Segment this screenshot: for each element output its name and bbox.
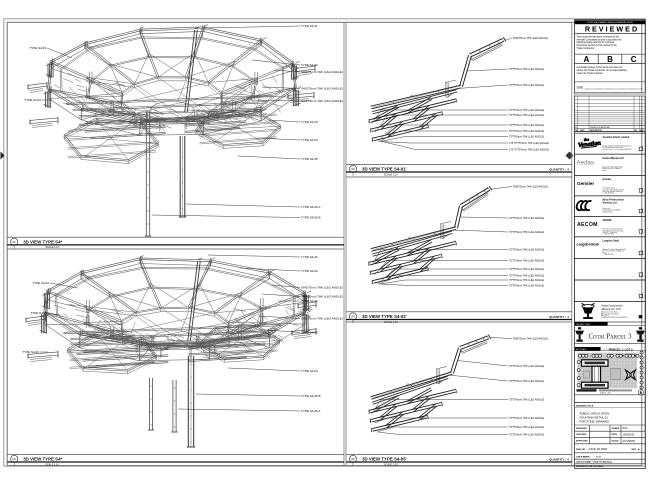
svg-text:75*75*6mm THK (L&G ANGLE): 75*75*6mm THK (L&G ANGLE) <box>509 380 544 383</box>
svg-text:05: 05 <box>351 457 355 461</box>
svg-text:NO.: NO. <box>575 130 579 132</box>
svg-text:DRAWING TITLE: DRAWING TITLE <box>576 404 594 407</box>
svg-text:8/F, Tower 2, Grand Central Pl: 8/F, Tower 2, Grand Central Plaza, <box>603 228 624 231</box>
svg-text:03: 03 <box>351 167 355 171</box>
svg-text:SCALE 1:10: SCALE 1:10 <box>384 173 398 176</box>
svg-text:-: - <box>597 440 598 443</box>
svg-text:Gensler: Gensler <box>577 181 594 186</box>
svg-text:JOB NUMBER :: JOB NUMBER : <box>576 456 591 458</box>
svg-text:13/05/2015: 13/05/2015 <box>623 434 635 436</box>
svg-text:C: C <box>631 55 637 64</box>
svg-text:AS SHOWN: AS SHOWN <box>623 440 636 443</box>
svg-text:75*75*6mm THK (L&G ANGLE): 75*75*6mm THK (L&G ANGLE) <box>509 417 544 420</box>
svg-text:75*75*6mm THK (L&G ANGLE): 75*75*6mm THK (L&G ANGLE) <box>509 260 544 263</box>
svg-text:L75 75*75*6mm THK (L&G ANGLE): L75 75*75*6mm THK (L&G ANGLE) <box>509 149 549 152</box>
svg-text:LangdonSeah: LangdonSeah <box>577 243 599 247</box>
svg-text:TYPE S4-03: TYPE S4-03 <box>301 331 318 335</box>
svg-text:-: - <box>597 433 598 436</box>
svg-text:B: B <box>607 55 613 64</box>
svg-text:SHS/75mm THK (L&G ANGLE): SHS/75mm THK (L&G ANGLE) <box>301 70 343 74</box>
svg-text:DRAWN: DRAWN <box>612 427 620 430</box>
svg-text:TYPE S4-05 A: TYPE S4-05 A <box>301 205 320 209</box>
svg-text:T + 852.2317.7000: T + 852.2317.7000 <box>603 234 615 236</box>
svg-text:SCALE 1 : 2500: SCALE 1 : 2500 <box>600 392 611 395</box>
svg-text:Macau: Macau <box>603 252 607 254</box>
svg-text:04: 04 <box>351 315 355 319</box>
svg-text:75*75*6mm THK (L&G ANGLE): 75*75*6mm THK (L&G ANGLE) <box>509 124 544 127</box>
svg-text:SCALE 1:10: SCALE 1:10 <box>45 463 59 466</box>
svg-text:Estrada da Baia de N. Senhora: Estrada da Baia de N. Senhora da Esperan… <box>603 144 633 147</box>
svg-text:Date :: Date : <box>577 85 586 89</box>
svg-text:ISSUED FOR APPROVAL: ISSUED FOR APPROVAL <box>590 126 610 129</box>
svg-text:TYPE S4-02: TYPE S4-02 <box>301 299 318 303</box>
svg-text:SCALE 1:10: SCALE 1:10 <box>45 246 59 249</box>
svg-text:SHS/75mm THK (L&G ANGLE): SHS/75mm THK (L&G ANGLE) <box>301 286 343 290</box>
svg-text:Procedure Section 5.4 for: Procedure Section 5.4 for action by the <box>577 44 618 47</box>
svg-text:Services Ltd.: Services Ltd. <box>603 207 611 210</box>
svg-text:QUANTITY : 4: QUANTITY : 4 <box>549 168 569 172</box>
svg-text:75*75*6mm THK (L&G ANGLE): 75*75*6mm THK (L&G ANGLE) <box>509 399 544 402</box>
svg-text:TYPE S4-04: TYPE S4-04 <box>301 369 318 373</box>
svg-text:TYPE S4-05 A: TYPE S4-05 A <box>301 409 320 413</box>
svg-text:Two Harbour Square: Two Harbour Square <box>603 187 616 190</box>
svg-text:Langdon Seah: Langdon Seah <box>603 239 620 242</box>
svg-text:LICENSED CONSTRUCTION No. 0828: LICENSED CONSTRUCTION No. 0828/2015 <box>601 317 627 319</box>
svg-text:75*75*6mm THK (L&G ANGLE): 75*75*6mm THK (L&G ANGLE) <box>509 84 544 87</box>
svg-text:R E V I E W E D: R E V I E W E D <box>585 25 637 34</box>
svg-text:Trade Contractor.: Trade Contractor. <box>577 47 595 50</box>
svg-text:SHS/75mm THK (L&G ANGLE): SHS/75mm THK (L&G ANGLE) <box>301 87 343 91</box>
svg-text:(Macau) CO. LTD.: (Macau) CO. LTD. <box>601 308 622 311</box>
svg-text:01: 01 <box>13 240 17 244</box>
svg-text:Consultant review of this: Consultant review of this document does … <box>577 66 623 69</box>
svg-text:CHECKED: CHECKED <box>576 434 587 436</box>
svg-text:Avenida da Praia Grande, No.66: Avenida da Praia Grande, No.665, <box>603 165 624 168</box>
svg-text:FOR STEEL DRAWING: FOR STEEL DRAWING <box>580 420 610 424</box>
svg-text:TYPE S4-03: TYPE S4-03 <box>301 120 318 124</box>
svg-text:SCALE: SCALE <box>612 440 620 443</box>
svg-text:L75 75*75*6mm THK (L&G ANGLE): L75 75*75*6mm THK (L&G ANGLE) <box>509 142 549 145</box>
svg-text:following status referred t: following status referred to in Project <box>577 41 615 44</box>
svg-text:QUANTITY : 4: QUANTITY : 4 <box>549 315 569 319</box>
svg-text:APPROVED: APPROVED <box>576 440 588 443</box>
svg-text:relevant Consultants(s) and: relevant Consultants(s) and is accorded … <box>577 38 623 41</box>
svg-text:75*75*6mm THK (L&G ANGLE): 75*75*6mm THK (L&G ANGLE) <box>509 285 544 288</box>
svg-text:Gensler: Gensler <box>603 178 612 181</box>
svg-text:TYPE S4-02: TYPE S4-02 <box>32 281 49 285</box>
svg-text:02: 02 <box>13 457 17 461</box>
svg-text:75*75*6mm THK (L&G ANGLE): 75*75*6mm THK (L&G ANGLE) <box>509 268 544 271</box>
svg-text:CAD FILE NAME : 3-SUB_FD_BS04.: CAD FILE NAME : 3-SUB_FD_BS04.dwg <box>576 460 613 463</box>
svg-text:relieve the Trade Contracto: relieve the Trade Contractor of its resp… <box>577 69 628 72</box>
svg-text:75*75*6mm THK (L&G ANGLE): 75*75*6mm THK (L&G ANGLE) <box>509 231 544 234</box>
svg-text:75*75*6mm THK (L&G ANGLE): 75*75*6mm THK (L&G ANGLE) <box>509 109 544 112</box>
svg-text:TYPE S4-03: TYPE S4-03 <box>29 46 46 50</box>
svg-text:This document has been rev: This document has been reviewed by the <box>577 36 620 39</box>
svg-text:SHS/75mm THK (L&G ANGLE): SHS/75mm THK (L&G ANGLE) <box>513 37 548 40</box>
svg-text:3-SUB_FD_BS04: 3-SUB_FD_BS04 <box>589 448 608 451</box>
svg-text:75*75*6mm THK (L&G ANGLE): 75*75*6mm THK (L&G ANGLE) <box>509 130 544 133</box>
svg-text:3D VIEW TYPE S4*: 3D VIEW TYPE S4* <box>23 457 62 462</box>
svg-text:SHS/75mm THK (L&G ANGLE): SHS/75mm THK (L&G ANGLE) <box>301 317 343 321</box>
svg-text:Macau: Macau <box>603 170 607 172</box>
svg-text:75*75*6mm THK (L&G ANGLE): 75*75*6mm THK (L&G ANGLE) <box>509 249 544 252</box>
svg-text:75*75*6mm THK (L&G ANGLE): 75*75*6mm THK (L&G ANGLE) <box>509 279 544 282</box>
svg-text:Avenida Comercial de Macau,: Avenida Comercial de Macau, <box>601 311 619 314</box>
svg-text:DESCRIPTION: DESCRIPTION <box>590 130 602 132</box>
svg-text:TYPE S4-03: TYPE S4-03 <box>30 311 47 315</box>
svg-text:3108: 3108 <box>596 456 602 458</box>
svg-text:DATE: DATE <box>612 433 618 436</box>
svg-text:3D VIEW TYPE S4-05': 3D VIEW TYPE S4-05' <box>362 457 407 462</box>
svg-text:75*75*6mm THK (L&G ANGLE): 75*75*6mm THK (L&G ANGLE) <box>509 275 544 278</box>
svg-text:SHS/75mm THK (L&G ANGLE): SHS/75mm THK (L&G ANGLE) <box>301 295 343 299</box>
svg-text:QUANTITY : 4: QUANTITY : 4 <box>549 458 569 462</box>
svg-text:SCALE 1:10: SCALE 1:10 <box>384 321 398 324</box>
svg-text:under the Trade Contract.: under the Trade Contract. <box>577 72 604 75</box>
svg-text:TYPE S4-02: TYPE S4-02 <box>22 350 39 354</box>
svg-text:Macau, P.R.C.: Macau, P.R.C. <box>601 315 610 317</box>
svg-text:REV : A: REV : A <box>632 448 640 451</box>
svg-text:REFERENCE CAD FILE NAME: REFERENCE CAD FILE NAME <box>576 465 604 468</box>
svg-text:SHS/75mm THK (L&G ANGLE): SHS/75mm THK (L&G ANGLE) <box>513 186 548 189</box>
svg-text:DWG NO :: DWG NO : <box>576 449 587 451</box>
svg-text:3D VIEW TYPE S4-02': 3D VIEW TYPE S4-02' <box>362 314 407 319</box>
svg-text:TYPE S4-05: TYPE S4-05 <box>301 157 318 161</box>
svg-text:TYPE S4-05 B: TYPE S4-05 B <box>301 394 321 398</box>
svg-text:Cotai Parcel 3: Cotai Parcel 3 <box>588 333 632 340</box>
svg-text:TYPE S4-02: TYPE S4-02 <box>24 98 41 102</box>
svg-text:T + 852.2519.6008: T + 852.2519.6008 <box>603 193 615 195</box>
svg-text:AECOM: AECOM <box>603 219 612 222</box>
svg-text:SCALE 1:10: SCALE 1:10 <box>384 463 398 466</box>
svg-text:Aedas: Aedas <box>577 160 595 167</box>
svg-text:A: A <box>584 55 590 64</box>
svg-text:3D VIEW TYPE S4-01': 3D VIEW TYPE S4-01' <box>362 167 407 172</box>
svg-text:Alameda Dr. Carlos d`Assumpcao: Alameda Dr. Carlos d`Assumpcao 263, <box>603 248 627 251</box>
svg-text:TYPE S4-02: TYPE S4-02 <box>301 255 318 259</box>
svg-text:T + 853.2833.1710: T + 853.2833.1710 <box>603 254 615 256</box>
svg-text:75*75*6mm THK (L&G ANGLE): 75*75*6mm THK (L&G ANGLE) <box>509 114 544 117</box>
svg-text:75*75*6mm THK (L&G ANGLE): 75*75*6mm THK (L&G ANGLE) <box>509 217 544 220</box>
svg-text:3D VIEW TYPE S4*: 3D VIEW TYPE S4* <box>23 240 62 245</box>
svg-text:TYPE S4-03: TYPE S4-03 <box>301 269 318 273</box>
svg-text:SHS/75mm THK (L&G ANGLE): SHS/75mm THK (L&G ANGLE) <box>301 99 343 103</box>
svg-text:AECOM: AECOM <box>577 222 598 228</box>
svg-text:TYPE S4-05 B: TYPE S4-05 B <box>301 216 321 220</box>
svg-text:TYPE S4-01: TYPE S4-01 <box>301 24 318 28</box>
svg-text:Venetian Orient Limited: Venetian Orient Limited <box>603 136 630 139</box>
svg-text:Kwun Tong, Kowloon, Hong Kong: Kwun Tong, Kowloon, Hong Kong <box>603 191 623 193</box>
svg-text:KEY PLAN: KEY PLAN <box>576 348 586 351</box>
svg-text:75*75*6mm THK (L&G ANGLE): 75*75*6mm THK (L&G ANGLE) <box>509 365 544 368</box>
svg-text:SHS/75mm THK (L&G ANGLE): SHS/75mm THK (L&G ANGLE) <box>513 338 548 341</box>
svg-text:DESIGNED: DESIGNED <box>576 428 587 430</box>
svg-text:TYPE S4-04: TYPE S4-04 <box>301 138 318 142</box>
svg-text:Aedas (Macau) Ltd.: Aedas (Macau) Ltd. <box>603 157 625 160</box>
svg-text:75*75*6mm THK (L&G ANGLE): 75*75*6mm THK (L&G ANGLE) <box>509 434 544 437</box>
svg-text:75*75*6mm THK (L&G ANGLE): 75*75*6mm THK (L&G ANGLE) <box>509 426 544 429</box>
svg-text:Services Ltd.: Services Ltd. <box>603 201 618 204</box>
svg-text:75*75*6mm THK (L&G ANGLE): 75*75*6mm THK (L&G ANGLE) <box>509 136 544 139</box>
svg-text:DAO: DAO <box>623 427 628 430</box>
svg-text:TYPE S4-02: TYPE S4-02 <box>301 63 318 67</box>
svg-text:75*75*6mm THK (L&G ANGLE): 75*75*6mm THK (L&G ANGLE) <box>509 68 544 71</box>
